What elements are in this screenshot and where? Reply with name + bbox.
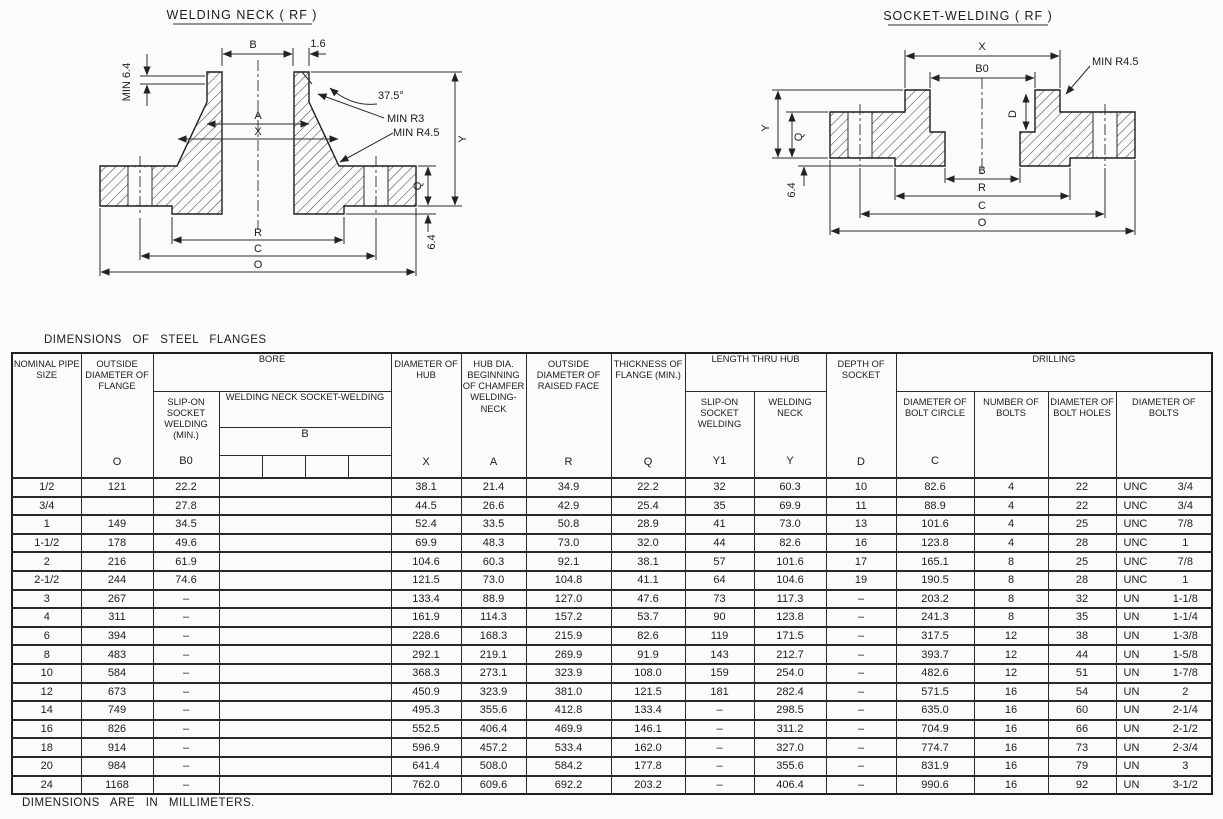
bolt-thread-size: 2-1/4 xyxy=(1166,704,1212,716)
header-letter: Q xyxy=(644,456,653,473)
header-label: NOMINAL PIPE SIZE xyxy=(13,354,81,381)
cell-bore-slip-on: 22.2 xyxy=(153,478,219,497)
cell-bolts-diameter: UNC7/8 xyxy=(1116,515,1212,534)
cell-outside-diameter xyxy=(81,497,153,516)
cell-chamfer-hub-diameter: 73.0 xyxy=(461,571,526,590)
bolt-thread-series: UN xyxy=(1117,723,1166,735)
cell-bolt-circle-diameter: 990.6 xyxy=(896,776,974,795)
cell-chamfer-hub-diameter: 323.9 xyxy=(461,683,526,702)
cell-nominal-pipe-size: 2-1/2 xyxy=(12,571,81,590)
dim-d: D xyxy=(1007,110,1019,118)
header-letter: B0 xyxy=(179,455,192,472)
cell-socket-depth: – xyxy=(826,701,896,720)
cell-thru-hub-slip-on: 143 xyxy=(685,645,754,664)
cell-chamfer-hub-diameter: 114.3 xyxy=(461,608,526,627)
table-row: 6394–228.6168.3215.982.6119171.5–317.512… xyxy=(12,627,1212,646)
header-bolt-circle: DIAMETER OF BOLT CIRCLE C xyxy=(896,391,974,478)
cell-bore-slip-on: 49.6 xyxy=(153,534,219,553)
cell-nominal-pipe-size: 14 xyxy=(12,701,81,720)
cell-thru-hub-slip-on: 73 xyxy=(685,590,754,609)
cell-socket-depth: – xyxy=(826,645,896,664)
cell-flange-thickness: 108.0 xyxy=(611,664,685,683)
cell-hub-diameter: 104.6 xyxy=(391,552,461,571)
cell-bolt-circle-diameter: 203.2 xyxy=(896,590,974,609)
header-bolts-diameter: DIAMETER OF BOLTS xyxy=(1116,391,1212,478)
cell-outside-diameter: 584 xyxy=(81,664,153,683)
cell-thru-hub-welding-neck: 69.9 xyxy=(754,497,826,516)
cell-bolt-circle-diameter: 393.7 xyxy=(896,645,974,664)
header-bore-slip-on: SLIP-ON SOCKET WELDING (MIN.) B0 xyxy=(153,391,219,478)
bolt-thread-size: 1 xyxy=(1166,537,1212,549)
cell-outside-diameter: 483 xyxy=(81,645,153,664)
cell-bore-welding-neck xyxy=(219,683,391,702)
cell-raised-face-diameter: 381.0 xyxy=(526,683,611,702)
header-label: DEPTH OF SOCKET xyxy=(827,354,896,381)
cell-bore-welding-neck xyxy=(219,571,391,590)
cell-thru-hub-welding-neck: 254.0 xyxy=(754,664,826,683)
cell-bolt-circle-diameter: 571.5 xyxy=(896,683,974,702)
header-label: DIAMETER OF BOLT HOLES xyxy=(1049,392,1116,419)
cell-bolt-hole-diameter: 25 xyxy=(1048,515,1116,534)
cell-nominal-pipe-size: 1/2 xyxy=(12,478,81,497)
flange-table-body: 1/212122.238.121.434.922.23260.31082.642… xyxy=(12,478,1212,794)
cell-bore-slip-on: – xyxy=(153,776,219,795)
cell-thru-hub-slip-on: 44 xyxy=(685,534,754,553)
cell-raised-face-diameter: 269.9 xyxy=(526,645,611,664)
cell-bore-welding-neck xyxy=(219,720,391,739)
header-b-subcells xyxy=(219,455,391,478)
header-label: WELDING NECK xyxy=(755,392,826,419)
cell-bore-welding-neck xyxy=(219,757,391,776)
cell-outside-diameter: 244 xyxy=(81,571,153,590)
dim-c: C xyxy=(254,243,262,255)
cell-outside-diameter: 826 xyxy=(81,720,153,739)
cell-bore-welding-neck xyxy=(219,664,391,683)
cell-socket-depth: – xyxy=(826,664,896,683)
cell-flange-thickness: 41.1 xyxy=(611,571,685,590)
cell-bore-welding-neck xyxy=(219,534,391,553)
table-row: 8483–292.1219.1269.991.9143212.7–393.712… xyxy=(12,645,1212,664)
header-flange-thickness: THICKNESS OF FLANGE (MIN.) Q xyxy=(611,353,685,478)
table-title: DIMENSIONS OF STEEL FLANGES xyxy=(44,334,267,346)
cell-socket-depth: 11 xyxy=(826,497,896,516)
header-hub-chamfer-diameter: HUB DIA. BEGINNING OF CHAMFER WELDING-NE… xyxy=(461,353,526,478)
header-letter: Y xyxy=(786,455,793,472)
table-row: 221661.9104.660.392.138.157101.617165.18… xyxy=(12,552,1212,571)
header-hub-diameter: DIAMETER OF HUB X xyxy=(391,353,461,478)
cell-socket-depth: 19 xyxy=(826,571,896,590)
cell-raised-face-diameter: 92.1 xyxy=(526,552,611,571)
cell-bolt-hole-diameter: 22 xyxy=(1048,497,1116,516)
cell-nominal-pipe-size: 20 xyxy=(12,757,81,776)
bolt-thread-size: 7/8 xyxy=(1166,556,1212,568)
cell-bore-slip-on: – xyxy=(153,608,219,627)
header-letter: A xyxy=(490,456,497,473)
cell-thru-hub-slip-on: 35 xyxy=(685,497,754,516)
cell-bolt-hole-diameter: 32 xyxy=(1048,590,1116,609)
cell-chamfer-hub-diameter: 21.4 xyxy=(461,478,526,497)
cell-bolt-circle-diameter: 704.9 xyxy=(896,720,974,739)
cell-chamfer-hub-diameter: 60.3 xyxy=(461,552,526,571)
cell-socket-depth: 16 xyxy=(826,534,896,553)
header-label: NUMBER OF BOLTS xyxy=(975,392,1048,419)
cell-socket-depth: – xyxy=(826,757,896,776)
cell-bore-welding-neck xyxy=(219,608,391,627)
cell-thru-hub-slip-on: 181 xyxy=(685,683,754,702)
cell-flange-thickness: 53.7 xyxy=(611,608,685,627)
cell-bolt-count: 8 xyxy=(974,571,1048,590)
header-letter: X xyxy=(422,456,429,473)
bolt-thread-series: UN xyxy=(1117,593,1166,605)
cell-socket-depth: – xyxy=(826,776,896,795)
cell-thru-hub-slip-on: – xyxy=(685,701,754,720)
cell-thru-hub-slip-on: 64 xyxy=(685,571,754,590)
bolt-thread-size: 1-1/4 xyxy=(1166,611,1212,623)
cell-bolt-hole-diameter: 60 xyxy=(1048,701,1116,720)
cell-bolts-diameter: UNC1 xyxy=(1116,534,1212,553)
cell-raised-face-diameter: 215.9 xyxy=(526,627,611,646)
cell-bolt-hole-diameter: 92 xyxy=(1048,776,1116,795)
welding-neck-title: WELDING NECK ( RF ) xyxy=(167,8,318,22)
cell-bolt-circle-diameter: 635.0 xyxy=(896,701,974,720)
cell-chamfer-hub-diameter: 88.9 xyxy=(461,590,526,609)
cell-raised-face-diameter: 323.9 xyxy=(526,664,611,683)
cell-bolt-circle-diameter: 165.1 xyxy=(896,552,974,571)
bolt-thread-size: 1-5/8 xyxy=(1166,649,1212,661)
cell-flange-thickness: 177.8 xyxy=(611,757,685,776)
header-thru-hub-slip-on: SLIP-ON SOCKET WELDING Y1 xyxy=(685,391,754,478)
cell-hub-diameter: 228.6 xyxy=(391,627,461,646)
header-label: DIAMETER OF HUB xyxy=(392,354,461,381)
bolt-thread-size: 2-3/4 xyxy=(1166,742,1212,754)
cell-bore-slip-on: 27.8 xyxy=(153,497,219,516)
cell-hub-diameter: 450.9 xyxy=(391,683,461,702)
cell-raised-face-diameter: 412.8 xyxy=(526,701,611,720)
cell-chamfer-hub-diameter: 457.2 xyxy=(461,738,526,757)
cell-bolt-hole-diameter: 38 xyxy=(1048,627,1116,646)
cell-bolt-circle-diameter: 482.6 xyxy=(896,664,974,683)
cell-bore-slip-on: – xyxy=(153,720,219,739)
cell-outside-diameter: 914 xyxy=(81,738,153,757)
cell-bore-slip-on: – xyxy=(153,738,219,757)
bolt-thread-series: UN xyxy=(1117,686,1166,698)
cell-thru-hub-slip-on: 32 xyxy=(685,478,754,497)
cell-hub-diameter: 292.1 xyxy=(391,645,461,664)
cell-thru-hub-welding-neck: 82.6 xyxy=(754,534,826,553)
cell-hub-diameter: 762.0 xyxy=(391,776,461,795)
cell-nominal-pipe-size: 1 xyxy=(12,515,81,534)
cell-flange-thickness: 38.1 xyxy=(611,552,685,571)
cell-bore-slip-on: – xyxy=(153,683,219,702)
cell-bore-slip-on: 61.9 xyxy=(153,552,219,571)
bolt-thread-series: UN xyxy=(1117,760,1166,772)
dim-rf-64: 6.4 xyxy=(786,182,798,197)
cell-bore-welding-neck xyxy=(219,590,391,609)
cell-raised-face-diameter: 469.9 xyxy=(526,720,611,739)
cell-bolts-diameter: UN3-1/2 xyxy=(1116,776,1212,795)
bolt-thread-size: 2 xyxy=(1166,686,1212,698)
dim-1-6: 1.6 xyxy=(310,38,325,50)
cell-bolt-count: 16 xyxy=(974,683,1048,702)
cell-outside-diameter: 267 xyxy=(81,590,153,609)
header-socket-depth: DEPTH OF SOCKET D xyxy=(826,353,896,478)
cell-bolts-diameter: UNC3/4 xyxy=(1116,478,1212,497)
header-label: DIAMETER OF BOLTS xyxy=(1117,392,1212,419)
cell-outside-diameter: 121 xyxy=(81,478,153,497)
cell-bore-slip-on: – xyxy=(153,701,219,720)
header-b-letter: B xyxy=(219,427,391,455)
cell-bore-slip-on: – xyxy=(153,757,219,776)
table-row: 12673–450.9323.9381.0121.5181282.4–571.5… xyxy=(12,683,1212,702)
cell-bolts-diameter: UN1-5/8 xyxy=(1116,645,1212,664)
table-row: 1/212122.238.121.434.922.23260.31082.642… xyxy=(12,478,1212,497)
cell-bolts-diameter: UN2-1/4 xyxy=(1116,701,1212,720)
cell-raised-face-diameter: 533.4 xyxy=(526,738,611,757)
cell-chamfer-hub-diameter: 406.4 xyxy=(461,720,526,739)
cell-socket-depth: – xyxy=(826,590,896,609)
cell-bolt-circle-diameter: 190.5 xyxy=(896,571,974,590)
cell-raised-face-diameter: 127.0 xyxy=(526,590,611,609)
header-length-thru-hub: LENGTH THRU HUB xyxy=(685,353,826,391)
cell-bolt-hole-diameter: 25 xyxy=(1048,552,1116,571)
cell-thru-hub-slip-on: – xyxy=(685,776,754,795)
socket-welding-diagram: SOCKET-WELDING ( RF ) X B0 MIN R4.5 D xyxy=(760,8,1180,238)
cell-bolt-count: 16 xyxy=(974,757,1048,776)
cell-hub-diameter: 368.3 xyxy=(391,664,461,683)
cell-chamfer-hub-diameter: 219.1 xyxy=(461,645,526,664)
cell-flange-thickness: 22.2 xyxy=(611,478,685,497)
cell-flange-thickness: 32.0 xyxy=(611,534,685,553)
header-label: OUTSIDE DIAMETER OF FLANGE xyxy=(82,354,153,392)
table-row: 3267–133.488.9127.047.673117.3–203.2832U… xyxy=(12,590,1212,609)
cell-flange-thickness: 162.0 xyxy=(611,738,685,757)
bolt-thread-series: UN xyxy=(1117,630,1166,642)
cell-nominal-pipe-size: 10 xyxy=(12,664,81,683)
cell-bolts-diameter: UN1-1/8 xyxy=(1116,590,1212,609)
cell-bore-welding-neck xyxy=(219,738,391,757)
cell-thru-hub-welding-neck: 282.4 xyxy=(754,683,826,702)
table-row: 10584–368.3273.1323.9108.0159254.0–482.6… xyxy=(12,664,1212,683)
cell-socket-depth: – xyxy=(826,720,896,739)
cell-bolt-count: 16 xyxy=(974,738,1048,757)
footer-note: DIMENSIONS ARE IN MILLIMETERS. xyxy=(22,797,255,809)
cell-bolt-circle-diameter: 831.9 xyxy=(896,757,974,776)
cell-bore-welding-neck xyxy=(219,515,391,534)
table-row: 3/427.844.526.642.925.43569.91188.9422UN… xyxy=(12,497,1212,516)
cell-thru-hub-welding-neck: 101.6 xyxy=(754,552,826,571)
bolt-thread-size: 1-7/8 xyxy=(1166,667,1212,679)
cell-outside-diameter: 311 xyxy=(81,608,153,627)
header-letter: Y1 xyxy=(713,455,726,472)
cell-thru-hub-welding-neck: 311.2 xyxy=(754,720,826,739)
header-letter: R xyxy=(565,456,573,473)
cell-bolt-count: 8 xyxy=(974,608,1048,627)
header-raised-face-diameter: OUTSIDE DIAMETER OF RAISED FACE R xyxy=(526,353,611,478)
cell-bolt-hole-diameter: 22 xyxy=(1048,478,1116,497)
dim-o: O xyxy=(978,217,987,229)
cell-hub-diameter: 161.9 xyxy=(391,608,461,627)
bolt-thread-size: 3-1/2 xyxy=(1166,779,1212,791)
cell-chamfer-hub-diameter: 33.5 xyxy=(461,515,526,534)
bolt-thread-series: UNC xyxy=(1117,537,1166,549)
table-row: 2-1/224474.6121.573.0104.841.164104.6191… xyxy=(12,571,1212,590)
cell-bolt-count: 12 xyxy=(974,627,1048,646)
dim-r: R xyxy=(978,182,986,194)
cell-nominal-pipe-size: 16 xyxy=(12,720,81,739)
bolt-thread-size: 3/4 xyxy=(1166,481,1212,493)
cell-nominal-pipe-size: 4 xyxy=(12,608,81,627)
header-letter: C xyxy=(931,455,939,472)
bolt-thread-size: 3/4 xyxy=(1166,500,1212,512)
cell-hub-diameter: 641.4 xyxy=(391,757,461,776)
cell-bore-slip-on: 34.5 xyxy=(153,515,219,534)
dim-x: X xyxy=(254,126,262,138)
cell-bolt-hole-diameter: 28 xyxy=(1048,571,1116,590)
cell-hub-diameter: 596.9 xyxy=(391,738,461,757)
cell-bolt-count: 16 xyxy=(974,776,1048,795)
cell-hub-diameter: 495.3 xyxy=(391,701,461,720)
cell-socket-depth: – xyxy=(826,738,896,757)
cell-nominal-pipe-size: 2 xyxy=(12,552,81,571)
cell-thru-hub-welding-neck: 171.5 xyxy=(754,627,826,646)
cell-bore-welding-neck xyxy=(219,776,391,795)
cell-chamfer-hub-diameter: 273.1 xyxy=(461,664,526,683)
cell-bolts-diameter: UNC7/8 xyxy=(1116,552,1212,571)
cell-bolts-diameter: UN1-1/4 xyxy=(1116,608,1212,627)
dim-r: R xyxy=(254,227,262,239)
cell-nominal-pipe-size: 3/4 xyxy=(12,497,81,516)
cell-bolt-count: 8 xyxy=(974,552,1048,571)
dim-o: O xyxy=(254,259,263,271)
cell-flange-thickness: 28.9 xyxy=(611,515,685,534)
bolt-thread-size: 3 xyxy=(1166,760,1212,772)
cell-bolts-diameter: UNC3/4 xyxy=(1116,497,1212,516)
cell-thru-hub-welding-neck: 327.0 xyxy=(754,738,826,757)
dim-y: Y xyxy=(760,124,772,132)
cell-flange-thickness: 25.4 xyxy=(611,497,685,516)
cell-socket-depth: – xyxy=(826,683,896,702)
cell-raised-face-diameter: 692.2 xyxy=(526,776,611,795)
header-outside-diameter: OUTSIDE DIAMETER OF FLANGE O xyxy=(81,353,153,478)
cell-bolt-circle-diameter: 82.6 xyxy=(896,478,974,497)
cell-bolt-hole-diameter: 73 xyxy=(1048,738,1116,757)
cell-bolt-count: 4 xyxy=(974,478,1048,497)
header-bore-welding-neck: WELDING NECK SOCKET-WELDING xyxy=(219,391,391,427)
cell-bolt-count: 4 xyxy=(974,534,1048,553)
cell-bolt-count: 4 xyxy=(974,515,1048,534)
flange-section-right xyxy=(1020,90,1135,166)
bolt-thread-series: UNC xyxy=(1117,518,1166,530)
cell-outside-diameter: 984 xyxy=(81,757,153,776)
document-page: WELDING NECK ( RF ) MIN 6.4 B 1.6 37.5 xyxy=(0,0,1223,819)
welding-neck-diagram: WELDING NECK ( RF ) MIN 6.4 B 1.6 37.5 xyxy=(90,4,485,314)
dim-y: Y xyxy=(457,135,469,143)
cell-bolt-count: 16 xyxy=(974,701,1048,720)
cell-bolt-hole-diameter: 35 xyxy=(1048,608,1116,627)
cell-flange-thickness: 146.1 xyxy=(611,720,685,739)
bolt-thread-size: 2-1/2 xyxy=(1166,723,1212,735)
cell-outside-diameter: 749 xyxy=(81,701,153,720)
flange-section-left xyxy=(830,90,945,166)
cell-bore-slip-on: – xyxy=(153,645,219,664)
cell-bore-slip-on: 74.6 xyxy=(153,571,219,590)
cell-thru-hub-slip-on: – xyxy=(685,720,754,739)
table-row: 4311–161.9114.3157.253.790123.8–241.3835… xyxy=(12,608,1212,627)
bolt-thread-series: UN xyxy=(1117,667,1166,679)
cell-nominal-pipe-size: 3 xyxy=(12,590,81,609)
bolt-thread-size: 1 xyxy=(1166,574,1212,586)
cell-thru-hub-welding-neck: 104.6 xyxy=(754,571,826,590)
dim-q: Q xyxy=(793,132,805,141)
dim-x: X xyxy=(978,41,986,53)
cell-bolt-hole-diameter: 79 xyxy=(1048,757,1116,776)
cell-outside-diameter: 1168 xyxy=(81,776,153,795)
bolt-thread-series: UNC xyxy=(1117,481,1166,493)
bolt-thread-size: 1-1/8 xyxy=(1166,593,1212,605)
cell-chamfer-hub-diameter: 355.6 xyxy=(461,701,526,720)
cell-hub-diameter: 133.4 xyxy=(391,590,461,609)
cell-nominal-pipe-size: 8 xyxy=(12,645,81,664)
cell-socket-depth: – xyxy=(826,608,896,627)
cell-outside-diameter: 216 xyxy=(81,552,153,571)
cell-nominal-pipe-size: 12 xyxy=(12,683,81,702)
bolt-thread-series: UNC xyxy=(1117,556,1166,568)
cell-bolt-count: 4 xyxy=(974,497,1048,516)
cell-bolts-diameter: UN1-7/8 xyxy=(1116,664,1212,683)
cell-bore-slip-on: – xyxy=(153,590,219,609)
table-row: 241168–762.0609.6692.2203.2–406.4–990.61… xyxy=(12,776,1212,795)
header-nominal-pipe-size: NOMINAL PIPE SIZE xyxy=(12,353,81,478)
cell-thru-hub-welding-neck: 60.3 xyxy=(754,478,826,497)
bolt-thread-series: UN xyxy=(1117,704,1166,716)
bolt-thread-size: 7/8 xyxy=(1166,518,1212,530)
cell-chamfer-hub-diameter: 26.6 xyxy=(461,497,526,516)
cell-hub-diameter: 52.4 xyxy=(391,515,461,534)
cell-thru-hub-slip-on: 57 xyxy=(685,552,754,571)
cell-bore-slip-on: – xyxy=(153,627,219,646)
cell-bore-welding-neck xyxy=(219,645,391,664)
header-number-of-bolts: NUMBER OF BOLTS xyxy=(974,391,1048,478)
cell-bolts-diameter: UN3 xyxy=(1116,757,1212,776)
cell-thru-hub-slip-on: 159 xyxy=(685,664,754,683)
dim-min-r3: MIN R3 xyxy=(387,113,424,125)
table-row: 20984–641.4508.0584.2177.8–355.6–831.916… xyxy=(12,757,1212,776)
header-label: HUB DIA. BEGINNING OF CHAMFER WELDING-NE… xyxy=(462,354,526,415)
cell-outside-diameter: 178 xyxy=(81,534,153,553)
cell-hub-diameter: 44.5 xyxy=(391,497,461,516)
header-thru-hub-welding-neck: WELDING NECK Y xyxy=(754,391,826,478)
table-row: 18914–596.9457.2533.4162.0–327.0–774.716… xyxy=(12,738,1212,757)
cell-raised-face-diameter: 157.2 xyxy=(526,608,611,627)
cell-flange-thickness: 133.4 xyxy=(611,701,685,720)
bolt-thread-size: 1-3/8 xyxy=(1166,630,1212,642)
header-label: OUTSIDE DIAMETER OF RAISED FACE xyxy=(527,354,611,392)
flange-dimensions-table: NOMINAL PIPE SIZE OUTSIDE DIAMETER OF FL… xyxy=(11,352,1213,795)
dim-a: A xyxy=(254,110,262,122)
cell-thru-hub-slip-on: 41 xyxy=(685,515,754,534)
cell-raised-face-diameter: 73.0 xyxy=(526,534,611,553)
cell-flange-thickness: 82.6 xyxy=(611,627,685,646)
dim-b: B xyxy=(249,39,256,51)
cell-bore-welding-neck xyxy=(219,627,391,646)
bolt-thread-series: UNC xyxy=(1117,500,1166,512)
cell-thru-hub-slip-on: – xyxy=(685,757,754,776)
cell-bolt-hole-diameter: 51 xyxy=(1048,664,1116,683)
cell-flange-thickness: 47.6 xyxy=(611,590,685,609)
cell-raised-face-diameter: 50.8 xyxy=(526,515,611,534)
cell-raised-face-diameter: 34.9 xyxy=(526,478,611,497)
cell-bolts-diameter: UN2-3/4 xyxy=(1116,738,1212,757)
